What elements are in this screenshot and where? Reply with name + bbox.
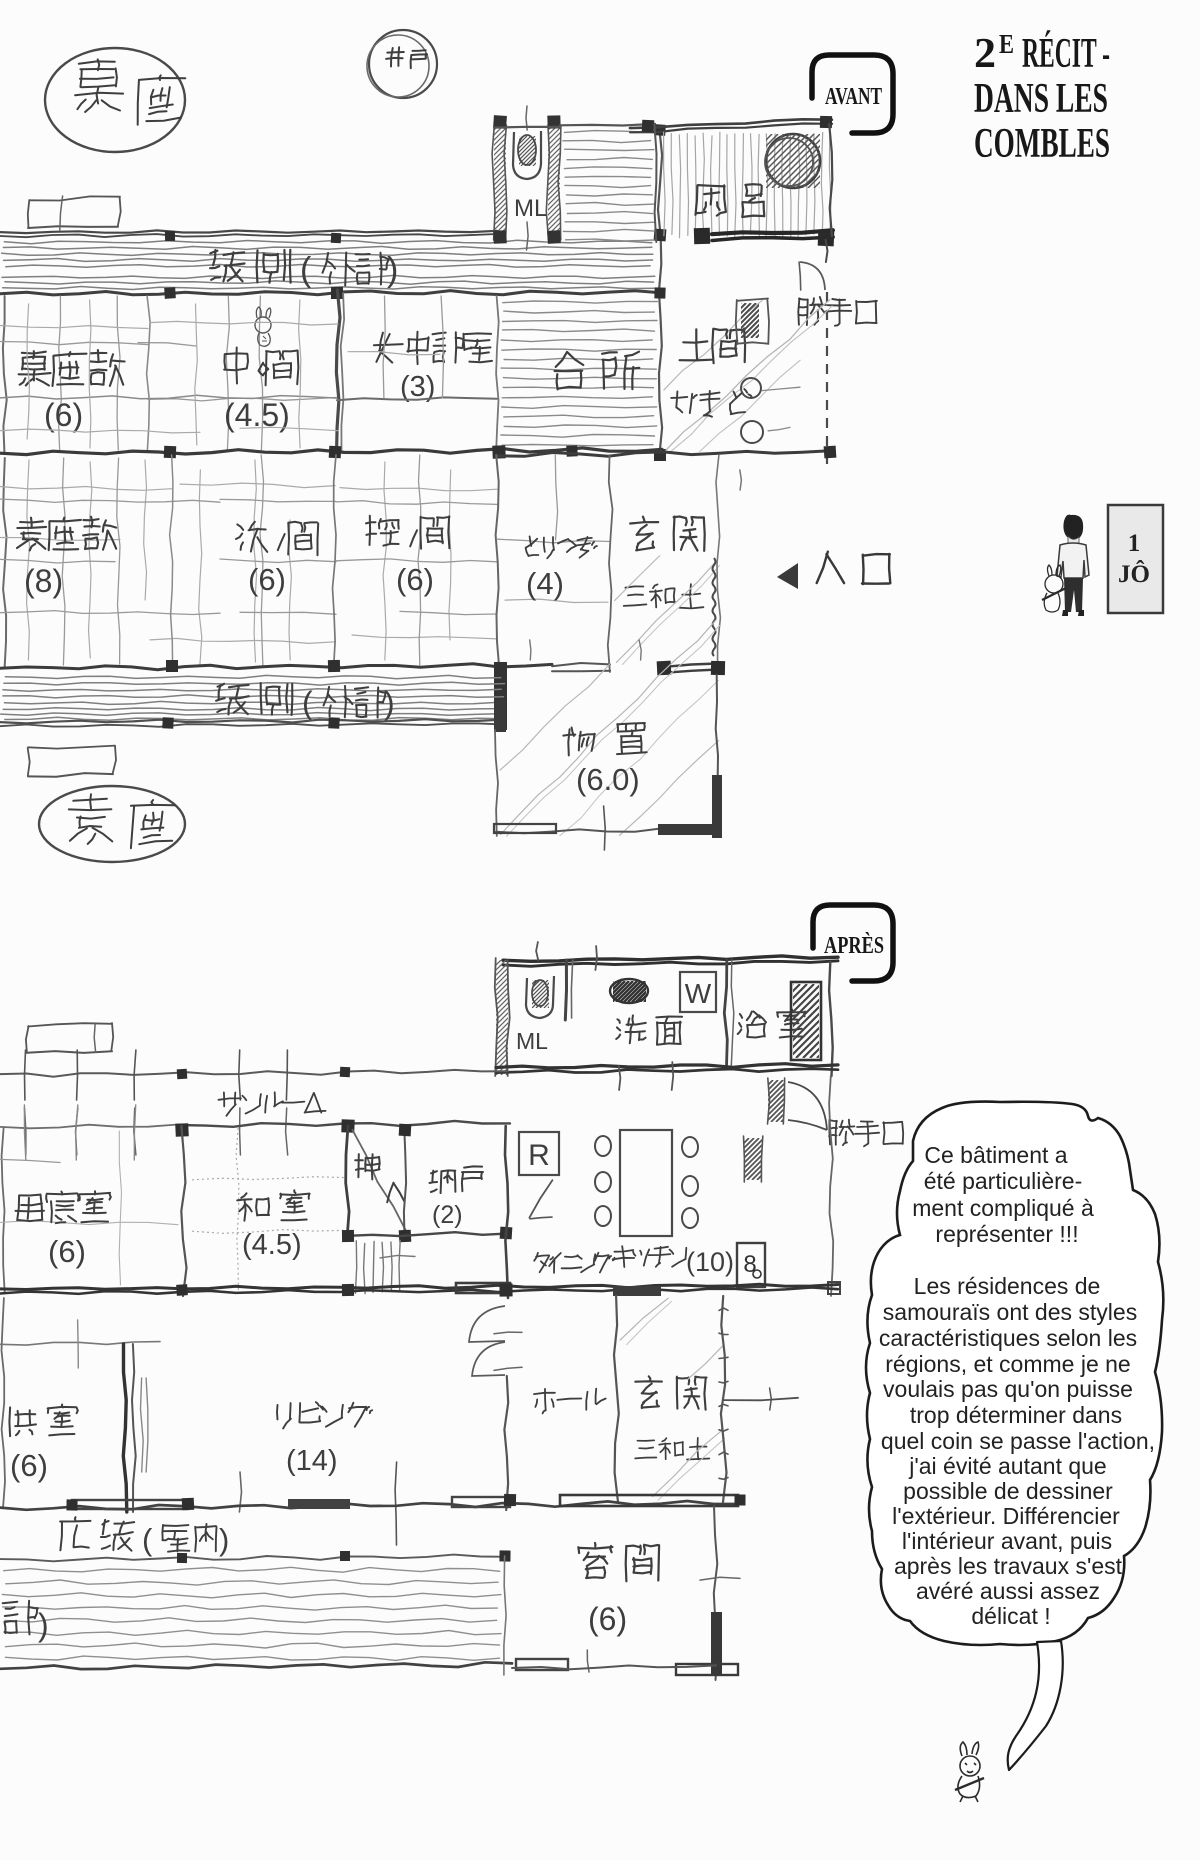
svg-text:ML: ML (516, 1028, 548, 1054)
svg-text:8: 8 (743, 1251, 756, 1278)
svg-text:RÉCIT -: RÉCIT - (1022, 30, 1110, 77)
svg-text:W: W (685, 978, 712, 1009)
svg-text:été particulière-: été particulière- (924, 1168, 1083, 1194)
svg-text:JÔ: JÔ (1118, 559, 1150, 588)
svg-text:R: R (528, 1139, 550, 1172)
svg-text:délicat !: délicat ! (971, 1603, 1050, 1629)
svg-text:): ) (387, 251, 398, 289)
svg-text:): ) (219, 1522, 229, 1557)
svg-text:(6): (6) (396, 562, 434, 597)
svg-text:(6): (6) (588, 1601, 627, 1637)
svg-text:ML: ML (514, 195, 547, 222)
svg-text:ment compliqué à: ment compliqué à (912, 1195, 1094, 1221)
svg-text:(4.5): (4.5) (242, 1229, 302, 1261)
svg-text:(: ( (300, 251, 312, 289)
svg-text:(6): (6) (248, 562, 286, 597)
svg-text:régions, et comme je ne: régions, et comme je ne (885, 1351, 1130, 1377)
svg-text:possible de dessiner: possible de dessiner (903, 1478, 1113, 1504)
svg-text:avéré aussi assez: avéré aussi assez (916, 1578, 1100, 1604)
svg-text:(: ( (142, 1522, 153, 1557)
svg-text:représenter !!!: représenter !!! (935, 1221, 1078, 1247)
svg-text:(2): (2) (432, 1201, 463, 1229)
svg-text:Les résidences de: Les résidences de (914, 1273, 1101, 1299)
svg-text:(8): (8) (24, 563, 63, 599)
svg-text:caractéristiques selon les: caractéristiques selon les (879, 1325, 1137, 1351)
svg-text:1: 1 (1128, 530, 1141, 557)
svg-text:(6): (6) (44, 397, 83, 433)
svg-text:samouraïs ont des styles: samouraïs ont des styles (883, 1299, 1137, 1325)
svg-text:quel coin se passe l'action,: quel coin se passe l'action, (881, 1428, 1155, 1454)
svg-text:(14): (14) (286, 1445, 338, 1477)
svg-text:2: 2 (974, 31, 996, 77)
svg-text:Ce bâtiment a: Ce bâtiment a (924, 1142, 1067, 1168)
svg-text:DANS LES: DANS LES (974, 76, 1108, 122)
svg-text:): ) (38, 1607, 49, 1643)
svg-text:l'intérieur avant, puis: l'intérieur avant, puis (902, 1528, 1112, 1554)
svg-text:COMBLES: COMBLES (974, 121, 1110, 167)
svg-text:(: ( (302, 685, 313, 721)
svg-text:E: E (999, 29, 1014, 59)
svg-text:(6): (6) (48, 1234, 86, 1269)
svg-text:(6): (6) (10, 1448, 48, 1483)
svg-text:après les travaux s'est: après les travaux s'est (894, 1553, 1123, 1579)
svg-text:(4): (4) (526, 566, 564, 601)
svg-text:l'extérieur. Différencier: l'extérieur. Différencier (892, 1503, 1120, 1529)
svg-text:(6.0): (6.0) (576, 762, 640, 797)
svg-text:j'ai évité autant que: j'ai évité autant que (908, 1453, 1106, 1479)
svg-text:AVANT: AVANT (825, 84, 882, 110)
svg-text:(10): (10) (686, 1247, 734, 1277)
svg-text:): ) (384, 685, 395, 721)
svg-text:APRÈS: APRÈS (824, 933, 884, 959)
svg-text:trop déterminer dans: trop déterminer dans (910, 1402, 1122, 1428)
svg-text:voulais pas qu'on puisse: voulais pas qu'on puisse (883, 1376, 1133, 1402)
